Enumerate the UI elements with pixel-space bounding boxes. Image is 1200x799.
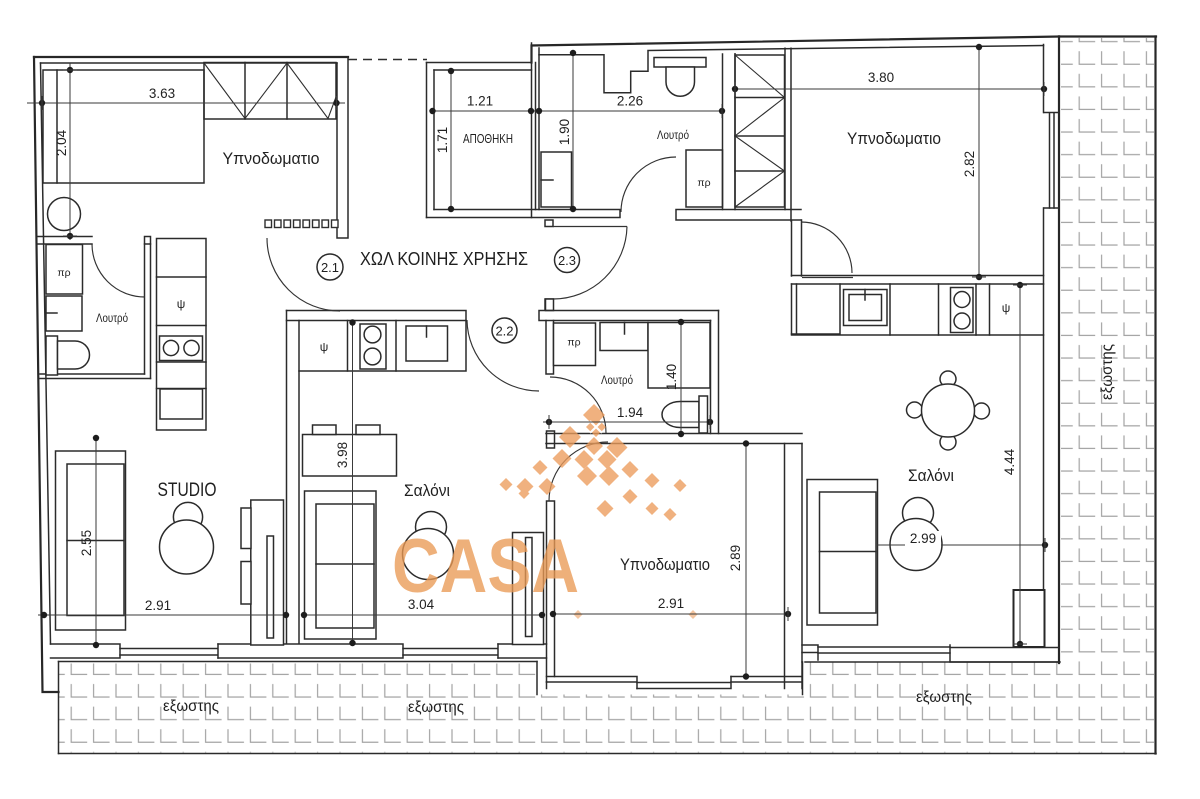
svg-text:1.94: 1.94 xyxy=(617,405,644,420)
svg-text:ψ: ψ xyxy=(320,340,329,354)
svg-text:3.80: 3.80 xyxy=(868,70,894,85)
svg-text:πρ: πρ xyxy=(57,267,70,279)
svg-text:ΑΠΟΘΗΚΗ: ΑΠΟΘΗΚΗ xyxy=(463,132,513,146)
svg-text:εξωστης: εξωστης xyxy=(1099,344,1116,400)
svg-text:Σαλόνι: Σαλόνι xyxy=(404,481,450,500)
svg-text:2.99: 2.99 xyxy=(910,531,936,546)
svg-text:1.21: 1.21 xyxy=(467,94,493,109)
svg-text:2.91: 2.91 xyxy=(145,598,171,613)
svg-text:Υπνοδωματιο: Υπνοδωματιο xyxy=(223,149,320,168)
svg-text:2.82: 2.82 xyxy=(962,151,977,177)
svg-text:3.63: 3.63 xyxy=(149,86,175,101)
svg-text:ΧΩΛ ΚΟΙΝΗΣ ΧΡΗΣΗΣ: ΧΩΛ ΚΟΙΝΗΣ ΧΡΗΣΗΣ xyxy=(360,249,528,269)
svg-text:4.44: 4.44 xyxy=(1002,448,1017,475)
svg-text:πρ: πρ xyxy=(567,337,580,349)
svg-text:εξωστης: εξωστης xyxy=(916,689,972,706)
svg-text:Υπνοδωματιο: Υπνοδωματιο xyxy=(847,129,941,148)
svg-text:3.04: 3.04 xyxy=(408,597,435,612)
svg-text:1.71: 1.71 xyxy=(435,127,450,153)
svg-text:2.91: 2.91 xyxy=(658,596,684,611)
svg-text:2.26: 2.26 xyxy=(617,94,643,109)
svg-text:2.1: 2.1 xyxy=(321,260,339,275)
svg-text:εξωστης: εξωστης xyxy=(408,699,464,716)
svg-text:εξωστης: εξωστης xyxy=(163,698,219,715)
svg-text:3.98: 3.98 xyxy=(335,442,350,468)
svg-text:ψ: ψ xyxy=(177,297,186,311)
svg-text:1.40: 1.40 xyxy=(664,364,679,390)
svg-text:Σαλόνι: Σαλόνι xyxy=(908,466,954,485)
svg-text:Λουτρό: Λουτρό xyxy=(657,128,689,142)
svg-text:Λουτρό: Λουτρό xyxy=(601,373,633,387)
svg-text:Υπνοδωματιο: Υπνοδωματιο xyxy=(620,555,710,574)
svg-text:2.2: 2.2 xyxy=(495,324,513,339)
svg-text:Λουτρό: Λουτρό xyxy=(96,311,128,325)
svg-text:2.3: 2.3 xyxy=(558,253,576,268)
svg-text:1.90: 1.90 xyxy=(557,119,572,145)
svg-text:2.89: 2.89 xyxy=(728,545,743,571)
svg-text:ψ: ψ xyxy=(1002,301,1011,315)
svg-text:2.55: 2.55 xyxy=(79,530,94,556)
svg-text:2.04: 2.04 xyxy=(54,129,69,156)
svg-text:STUDIO: STUDIO xyxy=(158,479,217,501)
svg-text:πρ: πρ xyxy=(697,177,710,189)
